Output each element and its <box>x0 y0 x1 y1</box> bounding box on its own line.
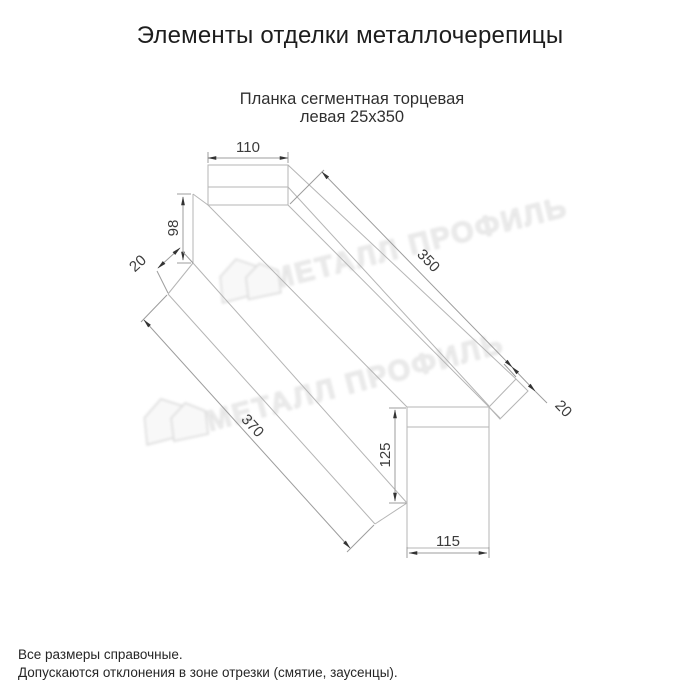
dim-label-125: 125 <box>377 442 394 467</box>
dimension-right-height: 125 <box>377 408 406 503</box>
metall-profil-logo-icon <box>138 390 210 446</box>
dimension-bottom-width: 115 <box>407 533 489 558</box>
watermark-lower: МЕТАЛЛ ПРОФИЛЬ <box>138 328 507 447</box>
dim-label-20-right: 20 <box>551 397 575 421</box>
footer-notes: Все размеры справочные. Допускаются откл… <box>18 646 678 681</box>
dim-label-98: 98 <box>165 220 182 237</box>
dim-label-20-left: 20 <box>126 252 150 276</box>
dimension-right-flange: 20 <box>512 367 575 421</box>
dim-label-110: 110 <box>236 139 260 156</box>
dim-label-115: 115 <box>436 533 460 550</box>
dimension-top-width: 110 <box>208 139 288 163</box>
dimension-left-height: 98 <box>165 194 191 263</box>
footer-note-2: Допускаются отклонения в зоне отрезки (с… <box>18 664 678 682</box>
footer-note-1: Все размеры справочные. <box>18 646 678 664</box>
technical-drawing: МЕТАЛЛ ПРОФИЛЬ МЕТАЛЛ ПРОФИЛЬ <box>0 0 700 700</box>
watermark-text: МЕТАЛЛ ПРОФИЛЬ <box>266 191 571 296</box>
watermark-upper: МЕТАЛЛ ПРОФИЛЬ <box>214 191 571 305</box>
metall-profil-logo-icon <box>214 251 282 305</box>
